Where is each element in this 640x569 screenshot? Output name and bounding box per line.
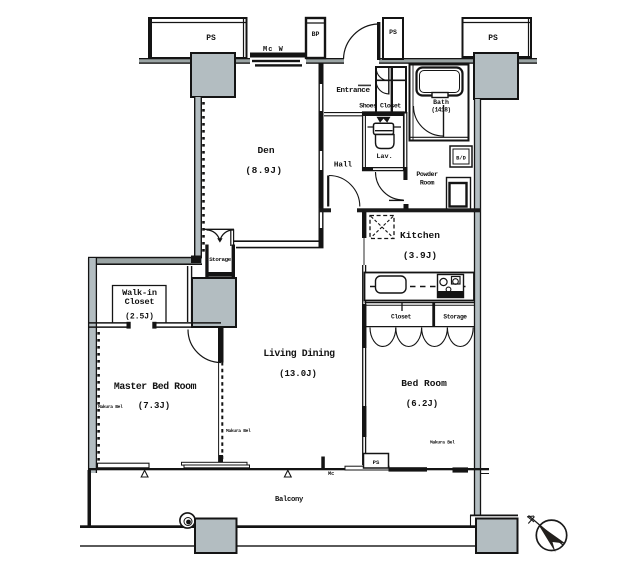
- svg-text:(8.9J): (8.9J): [245, 165, 282, 176]
- svg-text:(3.9J): (3.9J): [403, 250, 437, 261]
- svg-text:PS: PS: [488, 34, 498, 43]
- svg-text:Closet: Closet: [125, 297, 155, 307]
- svg-text:Lav.: Lav.: [376, 153, 392, 161]
- svg-text:Shoes Closet: Shoes Closet: [359, 103, 401, 110]
- svg-text:Bath: Bath: [433, 99, 449, 106]
- svg-text:PS: PS: [373, 459, 380, 466]
- svg-text:Master Bed Room: Master Bed Room: [114, 381, 197, 392]
- svg-text:Living Dining: Living Dining: [263, 348, 335, 359]
- svg-text:Kitchen: Kitchen: [400, 230, 440, 241]
- svg-text:Mc: Mc: [328, 471, 334, 477]
- svg-text:Storage: Storage: [443, 314, 467, 321]
- svg-text:PS: PS: [206, 34, 216, 43]
- svg-text:Den: Den: [257, 145, 274, 156]
- svg-text:(2.5J): (2.5J): [125, 313, 154, 322]
- svg-text:Closet: Closet: [391, 314, 412, 321]
- svg-text:Entrance: Entrance: [336, 87, 370, 95]
- svg-text:Balcony: Balcony: [275, 496, 304, 504]
- svg-text:B/D: B/D: [456, 156, 466, 162]
- svg-text:(1418): (1418): [431, 107, 450, 114]
- svg-text:Makura Bel: Makura Bel: [430, 440, 455, 446]
- svg-text:BP: BP: [312, 31, 320, 38]
- svg-text:Makura Bel: Makura Bel: [98, 404, 123, 410]
- svg-text:Bed Room: Bed Room: [401, 378, 447, 389]
- svg-text:(6.2J): (6.2J): [406, 399, 438, 409]
- svg-text:Powder: Powder: [416, 171, 438, 178]
- svg-text:(13.0J): (13.0J): [279, 369, 317, 379]
- svg-text:Storage: Storage: [209, 256, 231, 263]
- svg-text:Makura Bel: Makura Bel: [226, 428, 251, 434]
- svg-text:Hall: Hall: [334, 162, 353, 170]
- svg-text:Room: Room: [420, 180, 435, 187]
- svg-text:(7.3J): (7.3J): [138, 401, 170, 411]
- svg-text:PS: PS: [389, 29, 397, 36]
